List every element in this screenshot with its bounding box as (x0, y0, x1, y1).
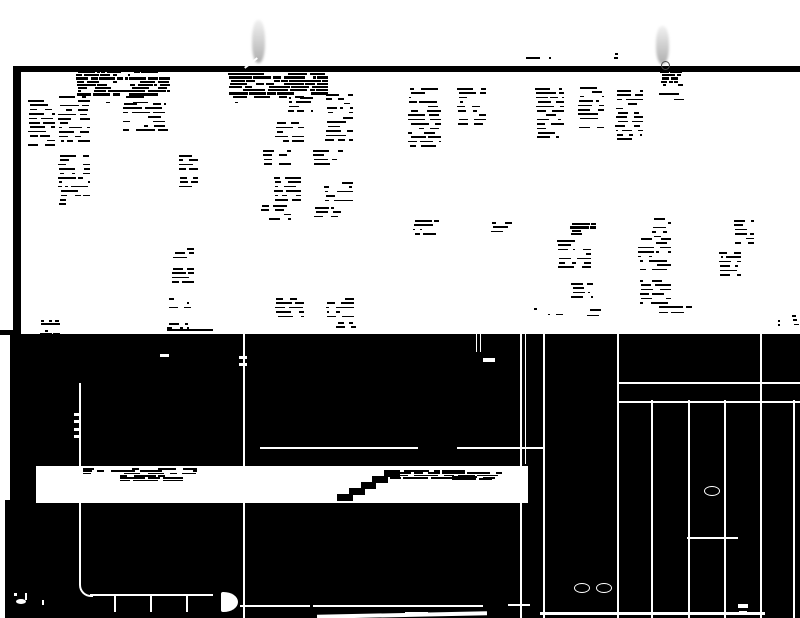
text-blob-stroke (651, 302, 669, 304)
text-blob-stroke (420, 229, 422, 231)
map-parcel-line (150, 594, 152, 612)
text-blob-stroke (310, 73, 326, 75)
text-blob-stroke (78, 109, 88, 111)
text-blob-stroke (571, 233, 577, 235)
text-blob-stroke (349, 186, 352, 188)
text-blob-stroke (141, 71, 158, 73)
text-blob-stroke (415, 233, 420, 235)
text-blob-stroke (326, 98, 332, 100)
text-blob-stroke (616, 116, 626, 118)
street-streak (431, 477, 455, 479)
text-blob-stroke (80, 114, 87, 116)
street-stair-step (384, 470, 400, 477)
text-blob-stroke (275, 186, 278, 188)
text-blob-stroke (505, 222, 512, 224)
street-streak (452, 478, 476, 480)
text-blob-stroke (78, 71, 95, 73)
text-blob-stroke (60, 159, 69, 161)
text-blob-stroke (130, 84, 135, 86)
text-blob-stroke (649, 260, 667, 262)
text-blob-stroke (301, 316, 304, 318)
street-streak (97, 470, 104, 472)
text-blob-stroke (77, 81, 84, 83)
text-blob-stroke (279, 154, 287, 156)
text-blob-stroke (348, 94, 353, 96)
text-blob-stroke (459, 92, 476, 94)
map-speck (160, 354, 169, 357)
text-blob-stroke (337, 191, 353, 193)
text-blob-stroke (100, 74, 109, 76)
text-blob-stroke (273, 205, 287, 207)
text-blob-stroke (666, 298, 671, 300)
text-blob (273, 177, 301, 201)
text-blob-stroke (325, 200, 329, 202)
text-blob-stroke (640, 302, 644, 304)
text-blob-stroke (179, 159, 183, 161)
text-blob-stroke (78, 177, 83, 179)
text-blob-stroke (292, 140, 304, 142)
text-blob-stroke (558, 244, 571, 246)
text-blob-stroke (65, 186, 68, 188)
text-blob-stroke (662, 74, 675, 76)
text-blob-stroke (58, 164, 66, 166)
text-blob-stroke (660, 71, 669, 73)
text-blob-stroke (60, 155, 76, 157)
text-blob-stroke (191, 181, 198, 183)
street-band-streaks (83, 468, 197, 475)
text-blob-stroke (411, 123, 429, 125)
text-blob-stroke (537, 119, 550, 121)
map-speck (739, 611, 747, 614)
text-blob-stroke (30, 126, 44, 128)
text-blob (313, 150, 343, 168)
text-blob-stroke (189, 159, 198, 161)
text-blob-stroke (735, 233, 747, 235)
text-blob-stroke (616, 108, 623, 110)
text-blob-stroke (668, 222, 671, 224)
text-blob-stroke (409, 101, 417, 103)
text-blob-stroke (559, 92, 564, 94)
text-blob-stroke (556, 101, 564, 103)
text-blob-stroke (76, 74, 81, 76)
text-blob-stroke (292, 199, 301, 201)
text-blob-stroke (279, 96, 287, 98)
text-blob-stroke (59, 136, 68, 138)
text-blob-stroke (231, 80, 245, 82)
text-blob-stroke (28, 100, 44, 102)
text-blob-stroke (66, 109, 72, 111)
text-blob (557, 240, 591, 271)
text-blob-stroke (720, 274, 730, 276)
text-blob-stroke (652, 293, 664, 295)
text-blob-stroke (169, 307, 178, 309)
text-blob-stroke (58, 177, 76, 179)
text-blob-stroke (338, 150, 343, 152)
text-blob-stroke (172, 277, 189, 279)
map-parcel-line (457, 447, 543, 449)
text-blob-stroke (43, 122, 55, 124)
text-blob-stroke (331, 216, 337, 218)
text-blob-stroke (248, 73, 264, 75)
text-blob-stroke (269, 70, 287, 72)
text-blob-stroke (261, 83, 265, 85)
text-blob-stroke (472, 106, 480, 108)
text-blob (573, 309, 601, 317)
text-blob-stroke (187, 302, 189, 304)
text-blob-stroke (538, 132, 556, 134)
text-blob-stroke (61, 195, 67, 197)
text-blob-stroke (573, 287, 584, 289)
text-blob-stroke (291, 122, 299, 124)
text-blob-stroke (284, 186, 296, 188)
text-blob-stroke (233, 96, 247, 98)
text-blob-stroke (481, 88, 486, 90)
text-blob-stroke (326, 94, 340, 96)
text-blob-stroke (289, 97, 291, 99)
text-blob-stroke (659, 93, 678, 95)
text-blob-stroke (45, 330, 48, 332)
street-streak (479, 478, 492, 480)
text-blob-stroke (264, 163, 272, 165)
text-blob-stroke (641, 289, 654, 291)
text-blob-stroke (289, 101, 292, 103)
text-blob-stroke (587, 283, 593, 285)
text-blob-stroke (434, 220, 439, 222)
text-blob (733, 220, 754, 244)
text-blob (40, 320, 60, 335)
text-blob-stroke (313, 76, 316, 78)
text-blob-stroke (179, 155, 192, 157)
text-blob-stroke (641, 298, 653, 300)
text-blob-stroke (551, 123, 564, 125)
text-blob-stroke (338, 322, 344, 324)
text-blob-stroke (638, 251, 654, 253)
text-blob (323, 182, 353, 201)
street-streak (120, 477, 145, 479)
text-blob-stroke (67, 140, 74, 142)
text-blob-stroke (617, 90, 632, 92)
text-blob-stroke (94, 90, 106, 92)
text-blob-stroke (635, 94, 643, 96)
text-blob-stroke (457, 106, 465, 108)
text-blob-stroke (295, 302, 304, 304)
text-blob-stroke (345, 298, 354, 300)
text-blob (28, 100, 55, 145)
text-blob-stroke (559, 262, 565, 264)
text-blob-stroke (59, 131, 73, 133)
text-blob-stroke (78, 140, 90, 142)
map-glyph-dot (14, 593, 17, 596)
map-parcel-line (476, 334, 477, 352)
text-blob-stroke (573, 292, 585, 294)
map-parcel-line (617, 334, 619, 618)
text-blob-stroke (275, 199, 288, 201)
text-blob-stroke (439, 141, 441, 143)
text-blob (335, 322, 361, 331)
text-blob-stroke (652, 269, 667, 271)
text-blob-stroke (187, 268, 194, 270)
text-blob-stroke (659, 312, 669, 314)
text-blob-stroke (590, 309, 601, 311)
text-blob-stroke (474, 119, 486, 121)
text-blob-stroke (60, 105, 79, 107)
text-blob-stroke (579, 100, 592, 102)
text-blob-stroke (578, 109, 590, 111)
text-blob-stroke (263, 150, 274, 152)
text-blob-stroke (276, 302, 292, 304)
text-blob-stroke (338, 139, 345, 141)
text-blob-stroke (331, 207, 334, 209)
text-blob-stroke (734, 224, 743, 226)
text-blob-stroke (615, 53, 618, 55)
text-blob-stroke (306, 70, 319, 72)
text-blob-stroke (158, 81, 169, 83)
text-blob-stroke (75, 195, 81, 197)
text-blob-stroke (580, 118, 598, 120)
text-blob-stroke (28, 144, 37, 146)
map-circle-marker (574, 583, 590, 593)
text-blob-stroke (537, 123, 545, 125)
street-streak (120, 475, 127, 477)
text-blob-stroke (87, 81, 99, 83)
text-blob-stroke (240, 76, 252, 78)
text-blob-stroke (578, 105, 591, 107)
map-speck (738, 604, 748, 608)
text-blob-stroke (591, 296, 593, 298)
text-blob-stroke (298, 127, 304, 129)
text-blob-stroke (534, 308, 537, 310)
text-blob-stroke (83, 155, 89, 157)
text-blob-stroke (299, 311, 304, 313)
text-blob-stroke (185, 323, 188, 325)
text-blob (168, 298, 191, 308)
text-blob-stroke (249, 89, 265, 91)
text-blob-stroke (55, 323, 60, 325)
text-blob-stroke (47, 140, 55, 142)
text-blob-stroke (76, 77, 88, 79)
map-speck (42, 600, 44, 605)
text-blob (533, 308, 563, 317)
text-blob-stroke (671, 312, 684, 314)
text-blob-stroke (289, 106, 300, 108)
street-streak (442, 470, 465, 472)
text-blob-stroke (670, 71, 682, 73)
push-pin-1 (252, 20, 265, 63)
text-blob-stroke (421, 145, 436, 147)
text-blob-stroke (408, 114, 425, 116)
street-streak (442, 472, 465, 474)
text-blob-stroke (180, 181, 188, 183)
map-parcel-line (114, 594, 116, 612)
text-blob-stroke (148, 77, 158, 79)
text-blob-stroke (325, 139, 334, 141)
street-streak (428, 472, 440, 474)
text-blob-stroke (274, 80, 280, 82)
street-streak (158, 475, 165, 477)
map-speck (239, 363, 247, 366)
text-blob-stroke (536, 97, 548, 99)
text-blob (123, 103, 168, 132)
text-blob (275, 298, 304, 317)
text-blob-stroke (618, 121, 628, 123)
text-blob-stroke (536, 92, 556, 94)
street-streak (467, 472, 490, 474)
text-blob-stroke (231, 73, 248, 75)
text-blob-stroke (298, 76, 304, 78)
text-blob-stroke (778, 320, 780, 322)
text-blob-stroke (30, 109, 38, 111)
text-blob-stroke (661, 238, 671, 240)
text-blob-stroke (558, 119, 561, 121)
text-blob-stroke (230, 83, 247, 85)
text-blob-stroke (634, 112, 639, 114)
text-blob (167, 329, 213, 331)
text-blob (178, 155, 198, 188)
text-blob-stroke (654, 218, 665, 220)
text-blob-stroke (327, 316, 335, 318)
text-blob-stroke (656, 242, 667, 244)
text-blob-stroke (285, 177, 301, 179)
text-blob-stroke (640, 90, 643, 92)
text-blob (775, 320, 785, 328)
map-parcel-line (543, 334, 545, 618)
text-blob-stroke (229, 70, 243, 72)
text-blob-stroke (674, 81, 678, 83)
text-blob-stroke (274, 177, 280, 179)
text-blob-stroke (334, 200, 353, 202)
street-streak (182, 473, 196, 475)
text-blob-stroke (45, 109, 52, 111)
text-blob-stroke (550, 97, 558, 99)
text-blob-stroke (29, 122, 40, 124)
text-blob-stroke (254, 96, 271, 98)
street-band-streaks (452, 476, 492, 480)
map-parcel-line (687, 537, 738, 539)
text-blob-stroke (297, 110, 305, 112)
text-blob-stroke (235, 102, 238, 104)
text-blob-stroke (408, 132, 411, 134)
text-blob-stroke (263, 154, 272, 156)
text-blob-stroke (284, 86, 289, 88)
text-blob-stroke (616, 130, 618, 132)
text-blob-stroke (78, 90, 81, 92)
map-road-wedge (540, 612, 765, 615)
text-blob-stroke (153, 103, 161, 105)
push-pin-ring (661, 61, 670, 70)
text-blob-stroke (342, 316, 354, 318)
text-blob-stroke (588, 292, 590, 294)
text-blob-stroke (602, 96, 604, 98)
text-blob-stroke (720, 270, 737, 272)
text-blob-stroke (154, 125, 165, 127)
text-blob (535, 88, 564, 138)
text-blob-stroke (537, 110, 546, 112)
text-blob-stroke (282, 195, 287, 197)
street-streak (183, 468, 197, 470)
text-blob-stroke (275, 136, 287, 138)
text-blob-stroke (674, 99, 684, 101)
text-blob-stroke (556, 136, 559, 138)
text-blob-stroke (229, 76, 240, 78)
text-blob-stroke (410, 88, 414, 90)
text-blob-stroke (657, 264, 671, 266)
text-blob-stroke (262, 205, 269, 207)
text-blob-stroke (459, 119, 467, 121)
street-streak (434, 470, 440, 472)
text-blob-stroke (560, 106, 564, 108)
text-blob-stroke (428, 136, 441, 138)
text-blob-stroke (123, 121, 130, 123)
text-blob-stroke (580, 96, 584, 98)
text-blob-stroke (652, 231, 656, 233)
map-parcel-line (651, 400, 653, 618)
text-blob-stroke (638, 256, 641, 258)
text-blob-stroke (160, 84, 170, 86)
text-blob-stroke (328, 126, 340, 128)
text-blob-stroke (311, 110, 313, 112)
text-blob-stroke (427, 110, 441, 112)
text-blob-stroke (326, 307, 328, 309)
text-blob-stroke (641, 238, 652, 240)
street-streak (496, 472, 502, 474)
text-blob-stroke (328, 112, 333, 114)
map-parcel-line (724, 400, 726, 618)
text-blob-stroke (106, 102, 109, 104)
text-blob-stroke (327, 107, 336, 109)
street-streak (133, 480, 158, 482)
text-blob-stroke (351, 326, 357, 328)
street-streak (163, 477, 183, 479)
text-blob-stroke (269, 218, 280, 220)
text-blob-stroke (281, 80, 288, 82)
text-blob-stroke (535, 88, 550, 90)
text-blob-stroke (419, 128, 424, 130)
text-blob-stroke (267, 92, 276, 94)
text-blob-stroke (179, 164, 193, 166)
text-blob-stroke (296, 101, 311, 103)
text-blob-stroke (107, 71, 121, 73)
text-blob-stroke (552, 110, 564, 112)
text-blob-stroke (580, 87, 596, 89)
text-blob-stroke (668, 251, 671, 253)
text-blob-stroke (622, 130, 631, 132)
map-parcel-line (617, 382, 800, 384)
text-blob-stroke (83, 164, 90, 166)
street-streak (120, 480, 130, 482)
text-blob-stroke (275, 307, 285, 309)
text-blob-stroke (420, 141, 433, 143)
text-blob-stroke (343, 117, 353, 119)
text-blob-stroke (415, 220, 431, 222)
text-blob-stroke (286, 190, 300, 192)
text-blob-stroke (58, 118, 71, 120)
text-blob-stroke (266, 83, 274, 85)
text-blob (652, 218, 671, 238)
text-blob-stroke (290, 89, 307, 91)
text-blob-stroke (129, 77, 146, 79)
text-blob-stroke (88, 181, 90, 183)
map-speck (74, 413, 79, 416)
text-blob-stroke (649, 256, 651, 258)
text-blob-stroke (678, 84, 683, 86)
text-blob-stroke (182, 281, 194, 283)
text-blob (792, 315, 800, 329)
text-blob-stroke (172, 281, 179, 283)
street-stair-step (372, 476, 388, 483)
text-blob-stroke (307, 80, 321, 82)
text-blob-stroke (617, 94, 632, 96)
map-left-taper (5, 500, 10, 618)
